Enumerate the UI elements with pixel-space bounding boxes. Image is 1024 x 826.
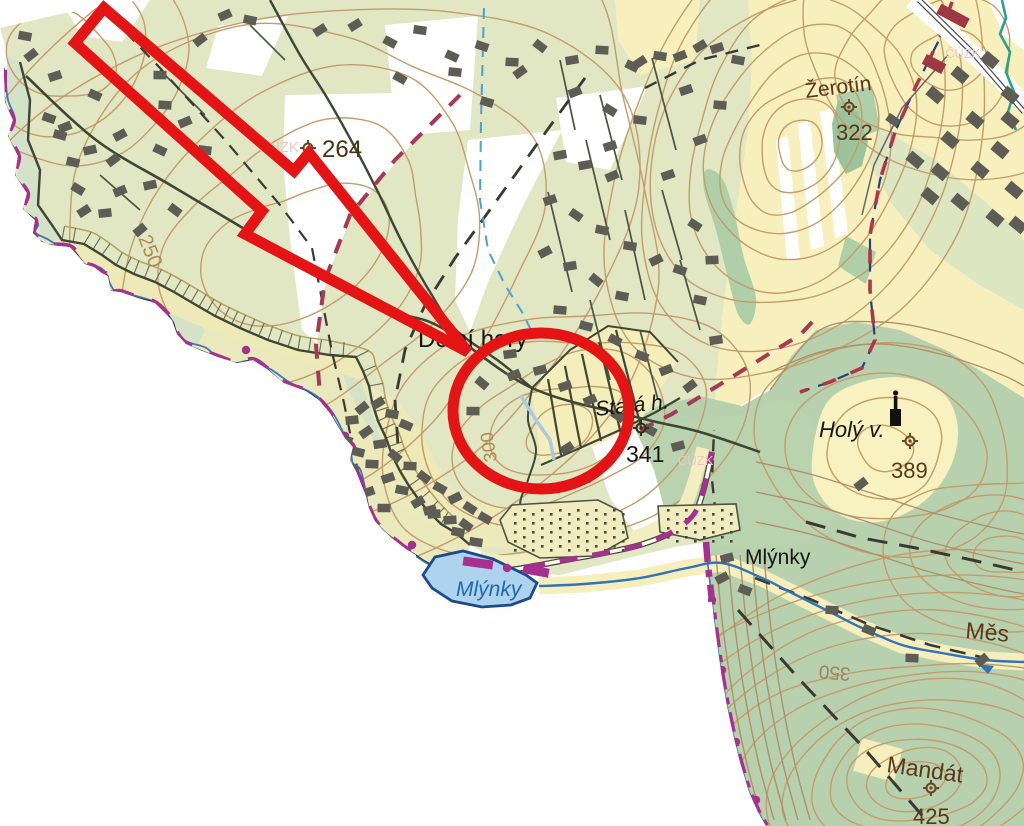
svg-text:350: 350 xyxy=(818,660,851,684)
svg-text:425: 425 xyxy=(913,804,950,826)
svg-text:341: 341 xyxy=(626,441,664,467)
svg-text:Holý v.: Holý v. xyxy=(819,417,885,442)
svg-text:Měs: Měs xyxy=(965,617,1011,647)
svg-text:ČÚZK: ČÚZK xyxy=(678,453,714,468)
svg-text:322: 322 xyxy=(836,120,873,145)
svg-text:ČÚZK: ČÚZK xyxy=(945,46,981,61)
svg-text:389: 389 xyxy=(891,458,928,483)
svg-text:264: 264 xyxy=(322,136,362,163)
svg-text:Mlýnky: Mlýnky xyxy=(745,546,811,569)
svg-text:Mlýnky: Mlýnky xyxy=(456,578,523,601)
